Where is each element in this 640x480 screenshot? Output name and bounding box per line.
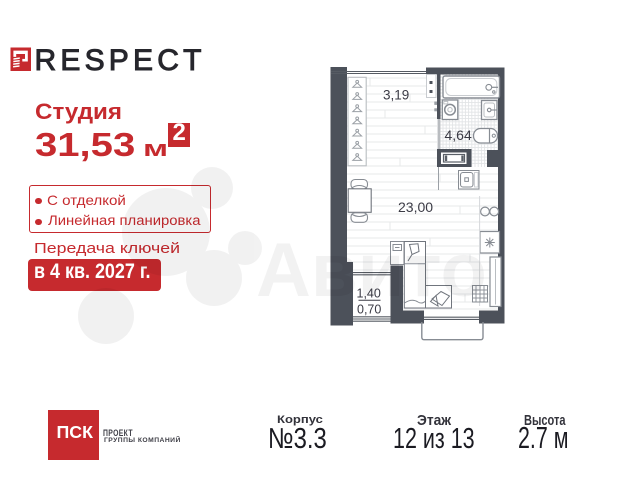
svg-text:Авито: Авито: [256, 228, 487, 313]
